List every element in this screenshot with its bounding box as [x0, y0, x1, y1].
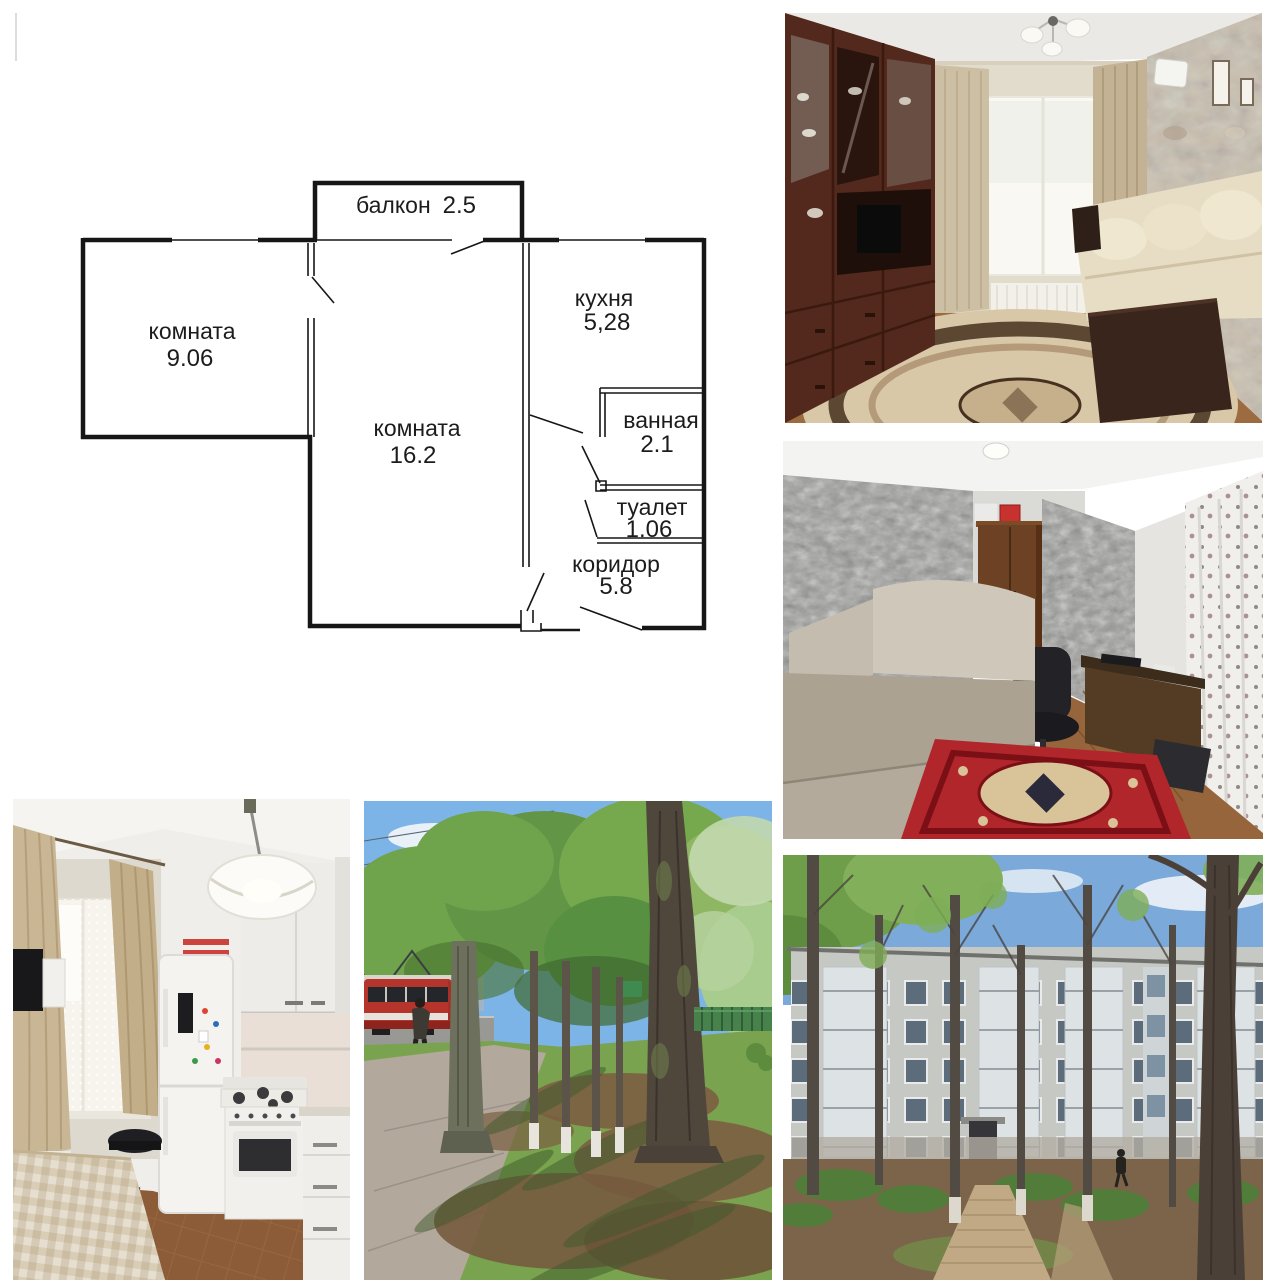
- living-room-scene: [785, 13, 1262, 423]
- photo-kitchen: [13, 799, 350, 1280]
- sofa-armrest: [1072, 205, 1101, 253]
- photo-small-room: [783, 440, 1263, 840]
- courtyard-scene: [783, 855, 1263, 1280]
- kitchen-area: 5,28: [584, 309, 631, 336]
- room16-label: комната: [374, 415, 461, 441]
- room9-area: 9.06: [167, 345, 214, 372]
- room16-area: 16.2: [390, 442, 437, 469]
- bathroom-door-swing: [582, 446, 600, 483]
- stove: [221, 1077, 307, 1219]
- lower-cabinets: [299, 1107, 350, 1280]
- left-curtain: [935, 65, 989, 315]
- green-fence: [694, 1007, 772, 1031]
- toilet-door-swing: [585, 500, 597, 537]
- balcony-label: балкон2.5: [356, 192, 476, 219]
- tv-bracket: [43, 959, 65, 1007]
- photo-courtyard: [783, 855, 1263, 1280]
- ground-floor-band: [791, 1137, 1263, 1161]
- entry-threshold: [521, 610, 541, 631]
- street-scene: [364, 801, 772, 1280]
- small-room-scene: [783, 441, 1263, 839]
- room9-door-swing: [312, 277, 334, 303]
- tv: [13, 949, 43, 1011]
- entry-door-swing: [580, 607, 642, 630]
- leather-ottoman: [1088, 300, 1232, 423]
- bathroom-area: 2.1: [640, 431, 673, 458]
- kitchen-scene: [13, 799, 350, 1280]
- photo-living-room: [785, 13, 1262, 423]
- balcony-door-swing: [451, 240, 487, 254]
- bathroom-label: ванная: [623, 407, 698, 433]
- white-box: [974, 503, 998, 523]
- air-conditioner: [1154, 58, 1189, 87]
- listing-collage: балкон2.5 комната 9.06 комната 16.2 кухн…: [0, 0, 1280, 1280]
- tv: [857, 205, 901, 253]
- corridor-area: 5.8: [599, 573, 632, 600]
- kitchen-door-swing: [530, 415, 583, 433]
- kitchen-label: кухня: [575, 285, 633, 311]
- fridge: [159, 939, 233, 1213]
- ceiling-lamp: [983, 443, 1009, 459]
- room9-label: комната: [149, 318, 236, 344]
- photo-street: [364, 801, 772, 1280]
- room9-partition: [308, 243, 314, 437]
- kitchen-partition: [523, 243, 529, 567]
- toilet-area: 1.06: [626, 516, 673, 543]
- room16-door-swing: [527, 573, 544, 611]
